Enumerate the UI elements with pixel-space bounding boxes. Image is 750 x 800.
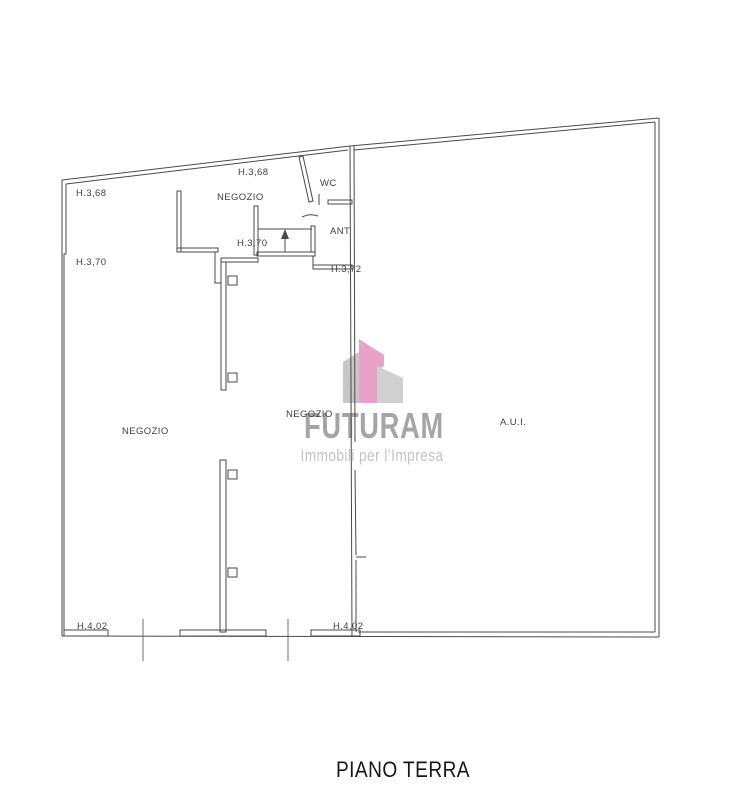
height-label-mid-right: H.3,72 — [331, 264, 361, 275]
room-label-wc: WC — [320, 178, 337, 189]
height-label-top-middle: H.3,68 — [238, 167, 268, 178]
room-label-aui: A.U.I. — [500, 417, 526, 428]
height-label-bottom-middle: H.4,02 — [333, 621, 363, 632]
height-label-mid-left: H.3,70 — [76, 257, 106, 268]
wc-door-leaf — [299, 156, 313, 202]
futuram-logo: FUTURAM Immobili per l’Impresa — [301, 339, 445, 465]
plan-title: PIANO TERRA — [336, 757, 470, 782]
futuram-logo-icon — [343, 339, 403, 403]
wc-door-swing — [302, 215, 318, 217]
floor-plan-page: FUTURAM Immobili per l’Impresa — [0, 0, 750, 800]
logo-tagline: Immobili per l’Impresa — [301, 446, 444, 465]
room-label-negozio-middle: NEGOZIO — [286, 409, 333, 420]
logo-building-right — [377, 366, 403, 403]
height-label-mid-middle: H.3,70 — [237, 238, 267, 249]
room-labels: NEGOZIO WC ANT NEGOZIO NEGOZIO A.U.I. — [122, 178, 526, 437]
floor-plan-svg: FUTURAM Immobili per l’Impresa — [0, 0, 750, 800]
room-label-negozio-left: NEGOZIO — [122, 426, 169, 437]
room-label-negozio-top: NEGOZIO — [217, 192, 264, 203]
interior-walls — [177, 146, 366, 637]
height-label-bottom-left: H.4,02 — [77, 621, 107, 632]
height-label-top-left: H.3,68 — [76, 188, 106, 199]
room-label-ant: ANT — [330, 226, 350, 237]
